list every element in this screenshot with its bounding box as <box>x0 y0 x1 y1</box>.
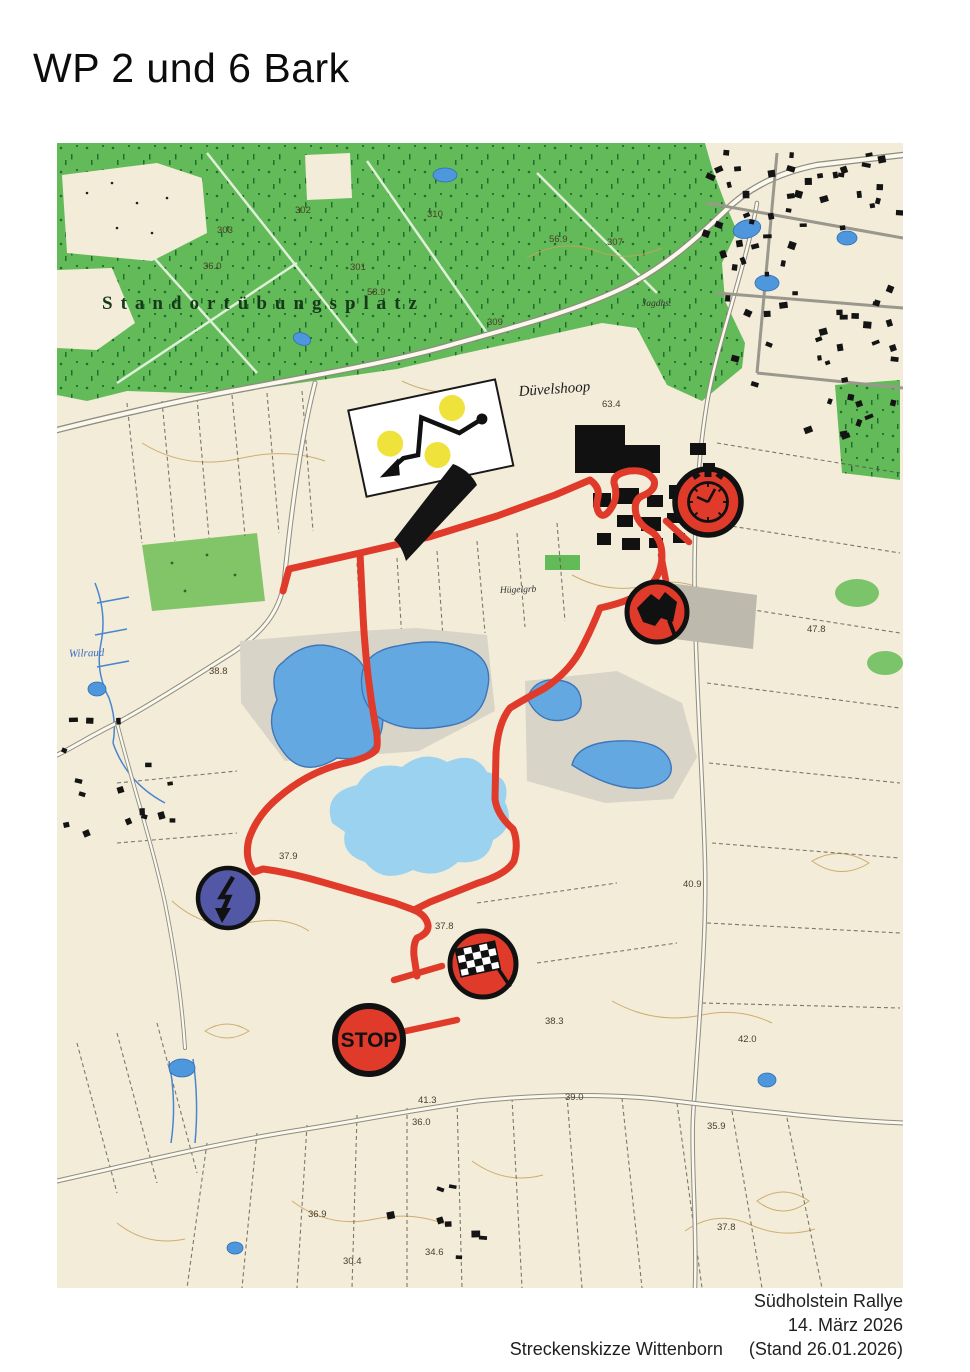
stop-label: STOP <box>341 1029 398 1052</box>
svg-text:301: 301 <box>350 262 366 273</box>
start-flag-control <box>627 582 687 642</box>
svg-text:309: 309 <box>487 317 503 328</box>
map-label-huegelgrb: Hügelgrb <box>499 585 537 596</box>
svg-text:41.3: 41.3 <box>418 1095 437 1106</box>
svg-text:35.9: 35.9 <box>707 1121 726 1132</box>
page-title: WP 2 und 6 Bark <box>33 45 350 92</box>
svg-text:307: 307 <box>607 237 623 248</box>
event-date: 14. März 2026 <box>443 1313 903 1337</box>
svg-text:40.9: 40.9 <box>683 879 702 890</box>
svg-text:36.0: 36.0 <box>412 1117 431 1128</box>
svg-text:56.9: 56.9 <box>549 234 568 245</box>
svg-text:42.0: 42.0 <box>738 1034 757 1045</box>
svg-text:37.9: 37.9 <box>279 851 298 862</box>
svg-text:36.9: 36.9 <box>308 1209 327 1220</box>
svg-text:310: 310 <box>427 209 443 220</box>
time-control <box>675 469 741 535</box>
svg-text:34.6: 34.6 <box>425 1247 444 1258</box>
svg-text:302: 302 <box>295 205 311 216</box>
svg-text:63.4: 63.4 <box>602 399 621 410</box>
svg-text:36.0: 36.0 <box>203 261 222 272</box>
svg-text:37.8: 37.8 <box>435 921 454 932</box>
svg-text:37.8: 37.8 <box>717 1222 736 1233</box>
svg-text:38.8: 38.8 <box>209 666 228 677</box>
svg-text:38.3: 38.3 <box>545 1016 564 1027</box>
route-map: Standortübungsplatz B 206 Düvelshoop Jag… <box>57 143 903 1288</box>
svg-text:39.0: 39.0 <box>565 1092 584 1103</box>
rally-stage-sheet: WP 2 und 6 Bark <box>0 0 970 1372</box>
route-map-image: Standortübungsplatz B 206 Düvelshoop Jag… <box>57 143 903 1288</box>
svg-text:30.4: 30.4 <box>343 1256 362 1267</box>
map-label-jagdhs: Jagdhs. <box>642 299 671 309</box>
sketch-label: Streckenskizze Wittenborn <box>510 1337 723 1361</box>
flying-finish-control <box>450 931 516 997</box>
map-caption: Südholstein Rallye 14. März 2026 Strecke… <box>443 1289 903 1361</box>
svg-text:47.8: 47.8 <box>807 624 826 635</box>
event-name: Südholstein Rallye <box>443 1289 903 1313</box>
map-label-wilraud: Wilraud <box>69 647 105 660</box>
revision-date: (Stand 26.01.2026) <box>749 1337 903 1361</box>
stop-control: STOP <box>335 1006 403 1074</box>
radio-point-control <box>198 868 258 928</box>
svg-text:303: 303 <box>217 225 233 236</box>
svg-text:58.9: 58.9 <box>367 287 386 298</box>
